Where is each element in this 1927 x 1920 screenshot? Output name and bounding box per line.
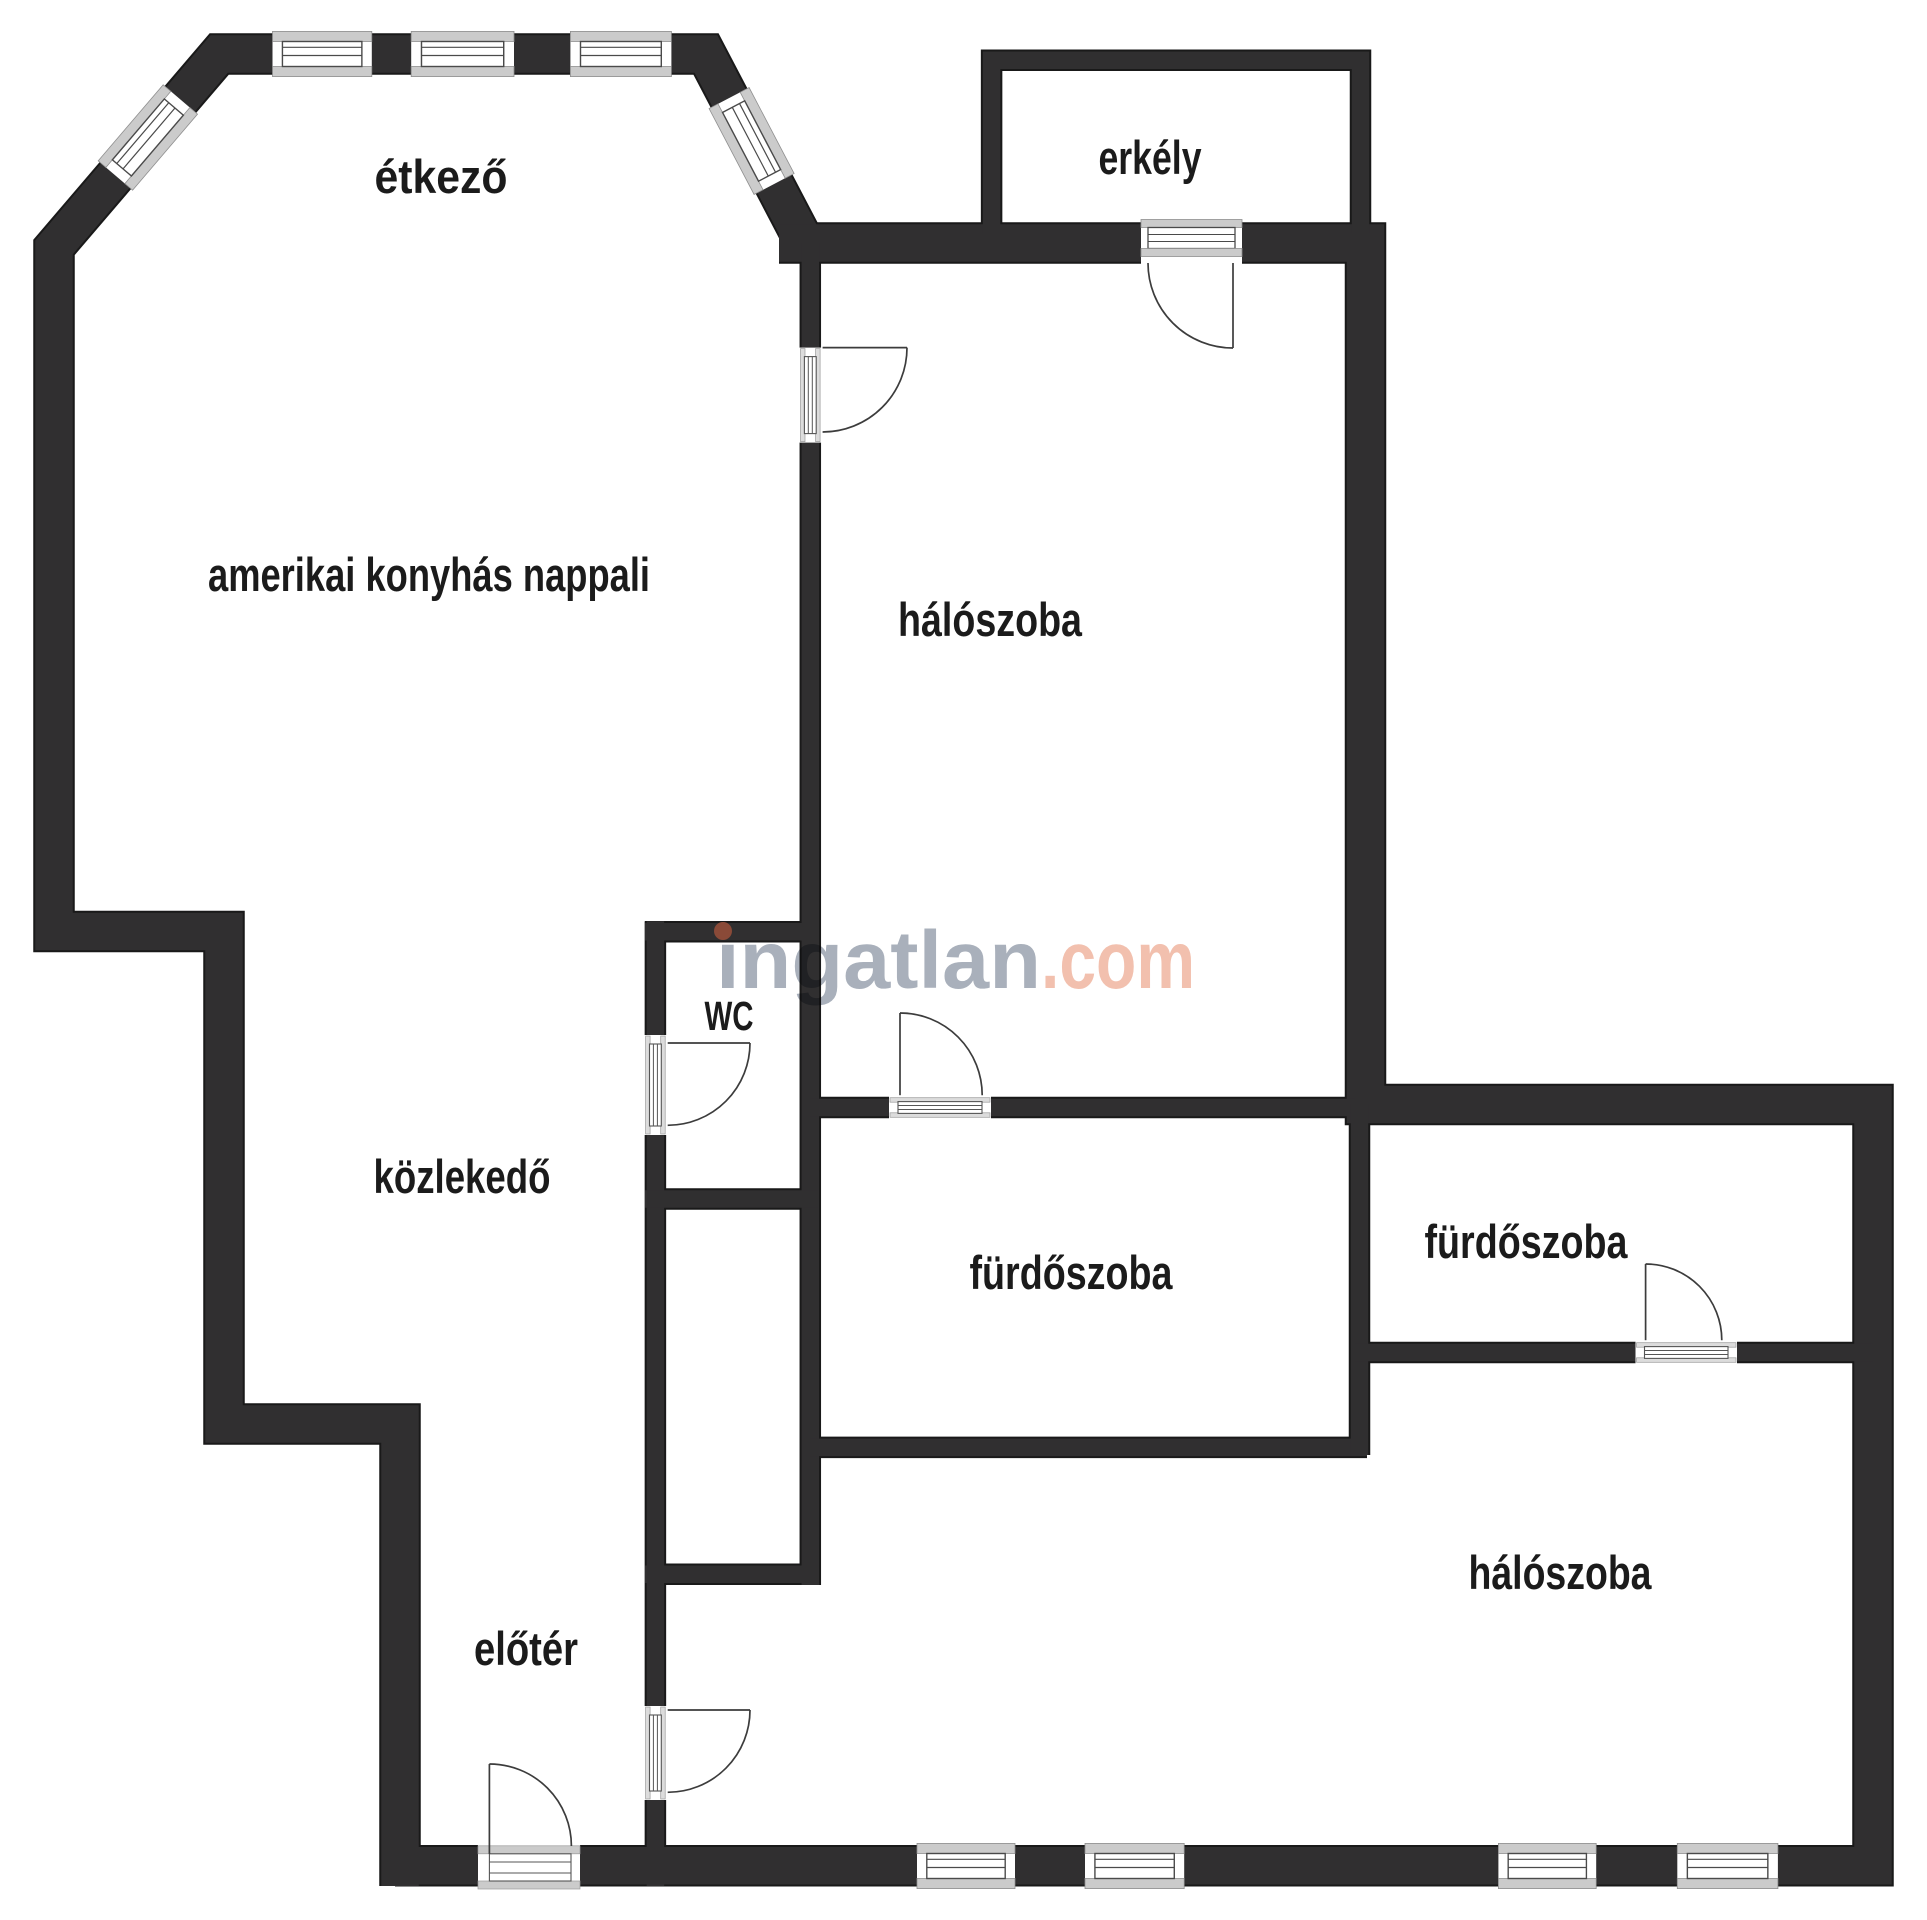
svg-text:közlekedő: közlekedő <box>374 1150 551 1203</box>
svg-text:ıngatlan: ıngatlan <box>716 915 1041 1006</box>
svg-text:.com: .com <box>1041 915 1195 1006</box>
svg-text:amerikai konyhás nappali: amerikai konyhás nappali <box>208 548 650 601</box>
svg-text:fürdőszoba: fürdőszoba <box>970 1246 1174 1299</box>
svg-text:étkező: étkező <box>375 150 508 203</box>
svg-text:erkély: erkély <box>1099 131 1202 184</box>
svg-text:hálószoba: hálószoba <box>898 593 1083 646</box>
svg-text:fürdőszoba: fürdőszoba <box>1425 1215 1629 1268</box>
svg-text:hálószoba: hálószoba <box>1469 1546 1653 1599</box>
svg-text:előtér: előtér <box>474 1622 578 1675</box>
